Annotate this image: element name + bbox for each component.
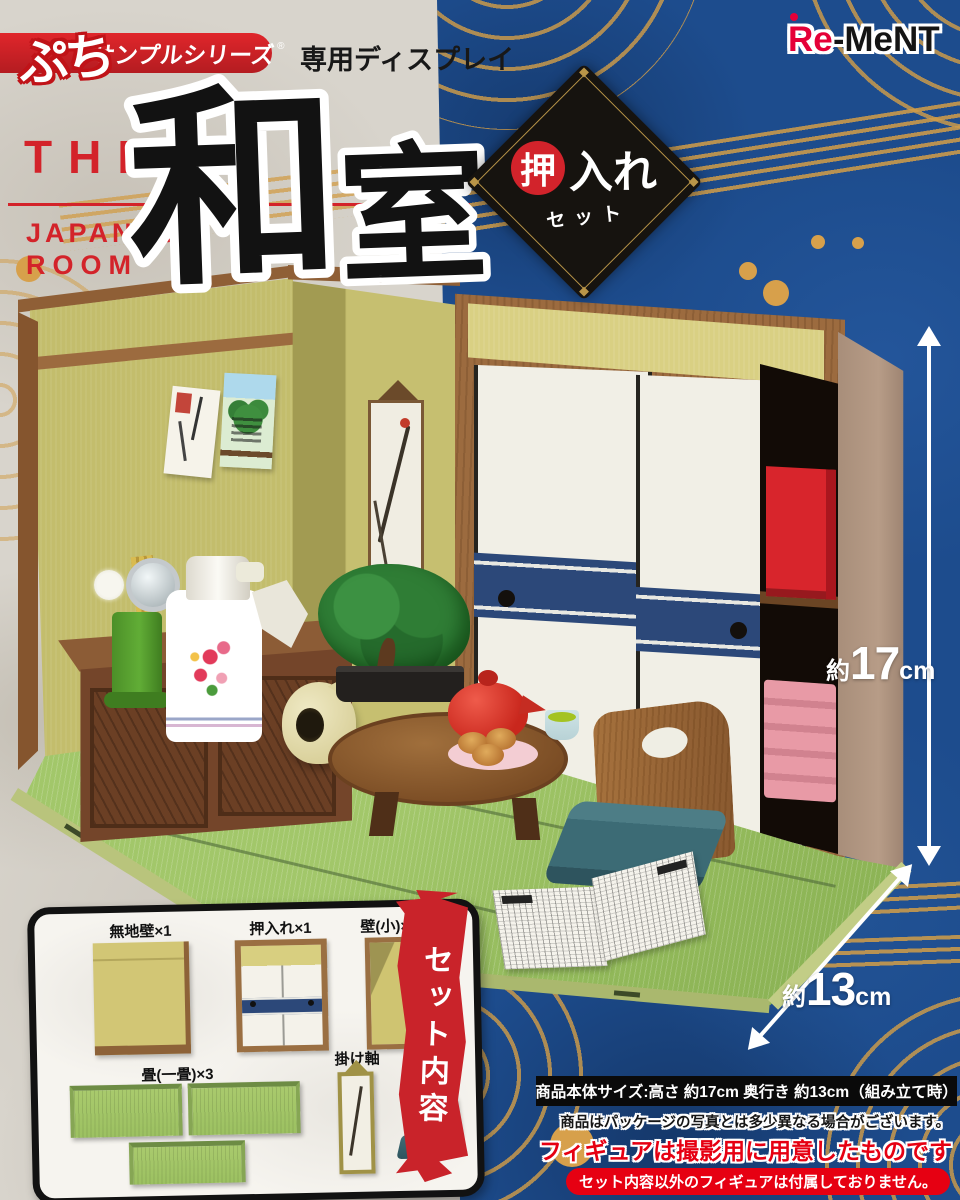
gold-dot <box>852 237 864 249</box>
item-tatami-mat <box>70 1084 183 1138</box>
series-name: サンプルシリーズ <box>90 36 276 70</box>
display-subtitle: 専用ディスプレイ <box>300 38 514 77</box>
badge-corner-diamond <box>579 287 589 297</box>
arrow-head-down <box>917 846 941 866</box>
item-label-tatami: 畳(一畳)×3 <box>141 1063 214 1086</box>
badge-corner-diamond <box>689 177 699 187</box>
badge-red-circle: 押 <box>511 141 565 195</box>
item-tatami-mat <box>129 1140 246 1184</box>
height-label: 約17cm <box>826 636 935 690</box>
gold-dot <box>763 280 789 306</box>
item-closet-wall <box>235 938 329 1052</box>
gold-dot <box>811 235 825 249</box>
height-unit: cm <box>899 657 935 686</box>
depth-unit: cm <box>855 983 891 1012</box>
badge-corner-diamond <box>469 177 479 187</box>
scroll-painting-stroke <box>349 1086 363 1156</box>
gold-stripe-band-lower-1 <box>666 879 960 927</box>
depth-label: 約13cm <box>782 962 891 1016</box>
badge-ire-text: 入れ <box>569 136 657 200</box>
set-contents-banner: セット内容 <box>396 890 468 1182</box>
item-plain-wall <box>93 941 191 1055</box>
calligraphy-title: 和 室 <box>115 35 505 338</box>
figure-note: フィギュアは撮影用に用意したものです <box>539 1132 952 1166</box>
height-arrow <box>916 326 942 866</box>
rement-logo: Re-MeNT <box>788 20 940 60</box>
item-label-plain-wall: 無地壁×1 <box>109 920 172 942</box>
badge-main-row: 押 入れ <box>511 136 657 200</box>
registered-mark: ® <box>277 41 284 52</box>
height-value: 17 <box>850 636 899 690</box>
kanji-shitsu: 室 <box>336 125 490 304</box>
item-label-closet: 押入れ×1 <box>249 917 312 939</box>
rement-logo-ment: -MeNT <box>833 20 940 59</box>
exclusion-note: セット内容以外のフィギュアは付属しておりません。 <box>566 1168 950 1195</box>
set-contents-banner-text: セット内容 <box>407 943 457 1129</box>
badge-set-text: セット <box>545 197 631 233</box>
badge-content: 押 入れ セット <box>500 98 668 266</box>
wall-seam <box>93 957 184 961</box>
scroll-hanger <box>343 1060 369 1075</box>
rement-logo-re: Re <box>788 20 833 59</box>
approx-prefix: 約 <box>826 651 850 686</box>
item-tatami-mat <box>188 1081 301 1135</box>
arrow-head-up <box>917 326 941 346</box>
gold-dot <box>739 262 757 280</box>
door-pull <box>308 1000 314 1006</box>
oshiire-set-badge: 押 入れ セット <box>465 63 703 301</box>
door-pull <box>250 1001 256 1007</box>
product-size-bar: 商品本体サイズ:高さ 約17cm 奥行き 約13cm（組み立て時） <box>536 1076 957 1106</box>
badge-corner-diamond <box>579 67 589 77</box>
arrow-line <box>927 342 931 850</box>
logo-dot <box>790 13 798 21</box>
package-front: THE JAPANESE ROOM <box>0 0 960 1200</box>
puchi-logo: ぷち <box>14 15 114 96</box>
kanji-wa: 和 <box>124 60 345 316</box>
variation-note: 商品はパッケージの写真とは多少異なる場合がございます。 <box>560 1111 950 1132</box>
approx-prefix: 約 <box>782 977 806 1012</box>
item-hanging-scroll <box>337 1072 375 1175</box>
title-room: ROOM <box>26 250 138 281</box>
depth-value: 13 <box>806 962 855 1016</box>
